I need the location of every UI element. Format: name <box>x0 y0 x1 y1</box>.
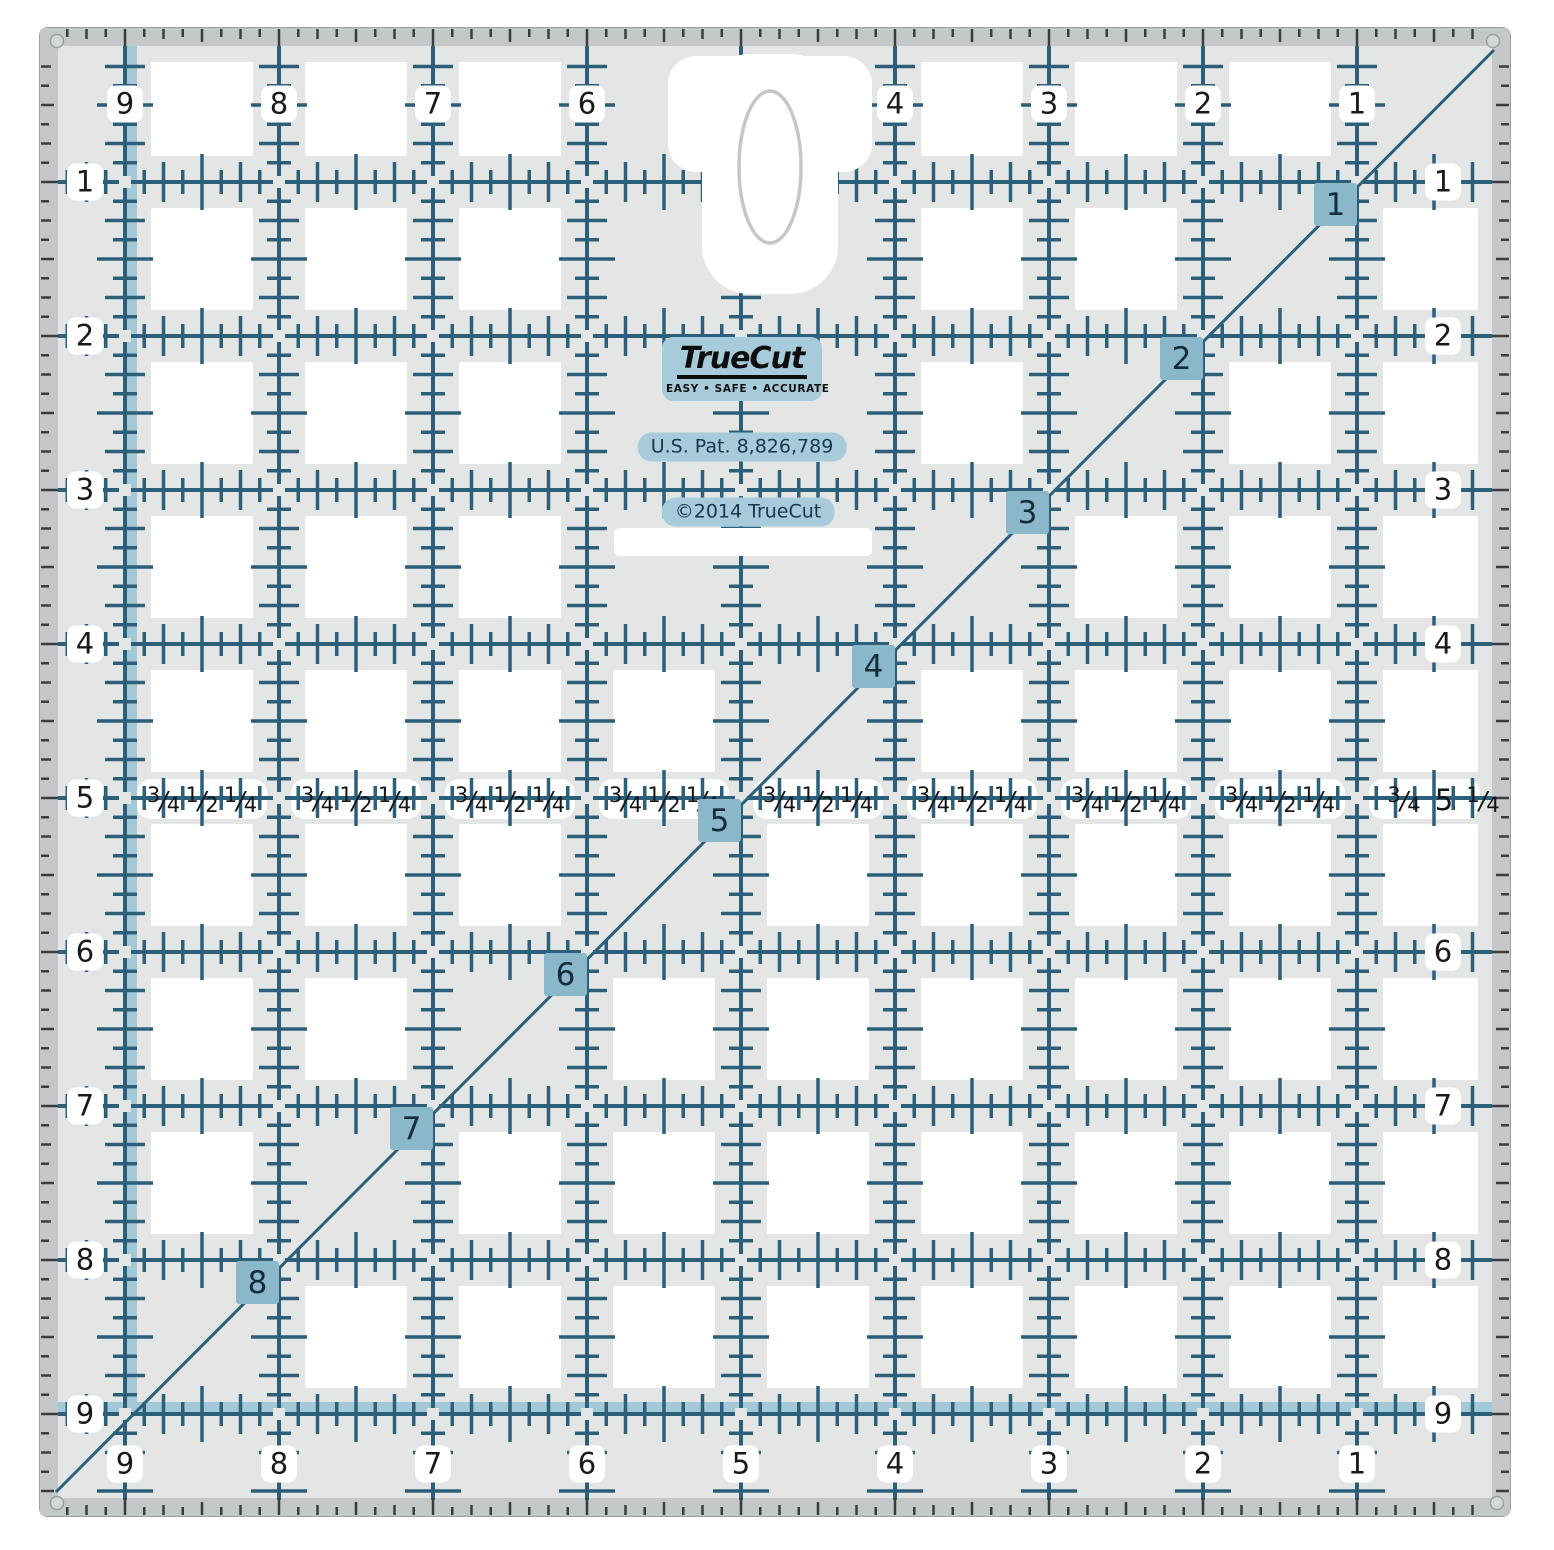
diagonal-inch-label: 6 <box>544 953 587 996</box>
patent-label: U.S. Pat. 8,826,789 <box>638 433 847 462</box>
bottom-inch-label: 5 <box>723 1446 759 1483</box>
diagonal-inch-label: 1 <box>1314 183 1357 226</box>
right-inch-label: 2 <box>1425 318 1461 355</box>
fraction-label: 1/2 <box>493 783 526 817</box>
fraction-label: 1/2 <box>339 783 372 817</box>
top-inch-label: 3 <box>1031 86 1067 123</box>
right-inch-label: 1 <box>1425 164 1461 201</box>
left-inch-label: 2 <box>67 318 103 355</box>
right-inch-label: 4 <box>1425 626 1461 663</box>
left-inch-label: 3 <box>67 472 103 509</box>
fraction-label: 1/4 <box>840 783 873 817</box>
top-inch-label: 1 <box>1339 86 1375 123</box>
fraction-label: 3/4 <box>455 783 488 817</box>
diagonal-inch-label: 5 <box>698 799 741 842</box>
bottom-inch-label: 9 <box>107 1446 143 1483</box>
fraction-label: 1/4 <box>1148 783 1181 817</box>
fraction-label: 3/4 <box>1225 783 1258 817</box>
top-inch-label: 6 <box>569 86 605 123</box>
bottom-inch-label: 4 <box>877 1446 913 1483</box>
fraction-label: 1/2 <box>1263 783 1296 817</box>
left-inch-label: 1 <box>67 164 103 201</box>
diagonal-inch-label: 4 <box>852 645 895 688</box>
brand-tagline: EASY • SAFE • ACCURATE <box>666 383 818 395</box>
fraction-label: 1/4 <box>532 783 565 817</box>
fraction-label: 3/4 <box>301 783 334 817</box>
fraction-label: 1/4 <box>378 783 411 817</box>
right-inch-label: 6 <box>1425 934 1461 971</box>
bottom-inch-label: 8 <box>261 1446 297 1483</box>
fraction-label: 3/4 <box>1387 783 1420 817</box>
top-inch-label: 7 <box>415 86 451 123</box>
ruler-photo: TrueCut EASY • SAFE • ACCURATE U.S. Pat.… <box>0 0 1554 1550</box>
ruler-labels: TrueCut EASY • SAFE • ACCURATE U.S. Pat.… <box>0 0 1554 1550</box>
fraction-label: 1/4 <box>224 783 257 817</box>
brand-logo: TrueCut EASY • SAFE • ACCURATE <box>662 337 822 401</box>
diagonal-inch-label: 2 <box>1160 337 1203 380</box>
fraction-label: 3/4 <box>1071 783 1104 817</box>
left-inch-label: 6 <box>67 934 103 971</box>
brand-wordmark: TrueCut <box>677 344 807 379</box>
top-inch-label: 4 <box>877 86 913 123</box>
right-inch-label: 8 <box>1425 1242 1461 1279</box>
fraction-label: 3/4 <box>609 783 642 817</box>
left-inch-label: 7 <box>67 1088 103 1125</box>
right-inch-label: 9 <box>1425 1396 1461 1433</box>
fraction-label: 1/2 <box>185 783 218 817</box>
fraction-label: 3/4 <box>763 783 796 817</box>
left-inch-label: 8 <box>67 1242 103 1279</box>
right-inch-label: 7 <box>1425 1088 1461 1125</box>
bottom-inch-label: 1 <box>1339 1446 1375 1483</box>
fraction-label: 3/4 <box>147 783 180 817</box>
fraction-label: 1/2 <box>801 783 834 817</box>
fraction-label: 5 <box>1435 783 1453 817</box>
left-inch-label: 5 <box>67 780 103 817</box>
bottom-inch-label: 3 <box>1031 1446 1067 1483</box>
fraction-label: 1/2 <box>1109 783 1142 817</box>
right-inch-label: 3 <box>1425 472 1461 509</box>
diagonal-inch-label: 3 <box>1006 491 1049 534</box>
left-inch-label: 4 <box>67 626 103 663</box>
top-inch-label: 8 <box>261 86 297 123</box>
diagonal-inch-label: 7 <box>390 1107 433 1150</box>
bottom-inch-label: 7 <box>415 1446 451 1483</box>
diagonal-inch-label: 8 <box>236 1261 279 1304</box>
fraction-label: 1/4 <box>994 783 1027 817</box>
bottom-inch-label: 6 <box>569 1446 605 1483</box>
fraction-label: 1/4 <box>1466 783 1499 817</box>
copyright-label: ©2014 TrueCut <box>662 498 835 527</box>
fraction-label: 3/4 <box>917 783 950 817</box>
fraction-label: 1/2 <box>955 783 988 817</box>
fraction-label: 1/4 <box>1302 783 1335 817</box>
top-inch-label: 9 <box>107 86 143 123</box>
bottom-inch-label: 2 <box>1185 1446 1221 1483</box>
top-inch-label: 2 <box>1185 86 1221 123</box>
left-inch-label: 9 <box>67 1396 103 1433</box>
fraction-label: 1/2 <box>647 783 680 817</box>
